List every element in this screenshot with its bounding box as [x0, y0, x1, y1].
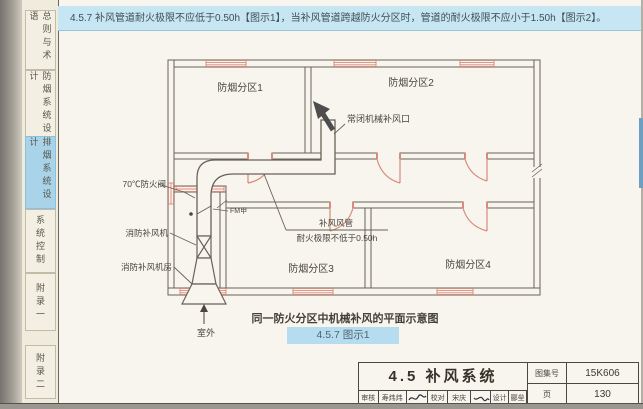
chapter-tab-column: 总则与术语 防烟系统设计 排烟系统设计 系统控制 附录一 附录二: [22, 0, 59, 404]
page-no-value: 130: [567, 384, 638, 404]
duct-label-line2: 耐火极限不低于0.50h: [297, 233, 378, 243]
section-title: 4.5 补风系统: [359, 363, 527, 390]
figure-tag: 4.5.7 图示1: [287, 327, 399, 344]
scanned-standard-page: 总则与术语 防烟系统设计 排烟系统设计 系统控制 附录一 附录二 4.5.7 补…: [0, 0, 643, 409]
tab-appendix-2: 附录二: [25, 345, 56, 399]
fire-supply-fan: [182, 236, 226, 304]
tab-smoke-exhaust-design: 排烟系统设计: [25, 136, 56, 209]
tab-appendix-1: 附录一: [25, 273, 56, 331]
zone-2-label: 防烟分区2: [388, 76, 434, 89]
fan-label: 消防补风机: [125, 228, 168, 238]
fan-room-label: 消防补风机房: [121, 262, 172, 272]
floor-plan-diagram: 防烟分区1 防烟分区2 防烟分区3 防烟分区4 70℃防火阀 FM甲 消防补风机…: [96, 46, 574, 342]
zone-4-label: 防烟分区4: [445, 258, 491, 271]
signature-icon: [407, 392, 427, 404]
outlet-label: 常闭机械补风口: [347, 113, 410, 124]
zone-1-label: 防烟分区1: [217, 81, 263, 94]
damper-mark-label: FM甲: [230, 207, 247, 215]
tab-edge-marker: [639, 118, 643, 188]
duct-label-line1: 补风风管: [319, 218, 353, 228]
signature-row: 审核 寿炜炜 校对 宋庆 设计 郦垒: [359, 390, 527, 404]
atlas-no-label: 图集号: [528, 363, 567, 383]
zone-3-label: 防烟分区3: [288, 262, 334, 275]
outdoor-arrow: [200, 304, 208, 324]
tab-system-control: 系统控制: [25, 209, 56, 273]
tab-general-terms: 总则与术语: [25, 10, 56, 70]
atlas-no-value: 15K606: [567, 363, 638, 383]
outdoor-intake-flare: [182, 284, 226, 304]
page-bottom-edge: [0, 403, 643, 409]
outdoor-label: 室外: [197, 327, 215, 338]
title-block: 4.5 补风系统 审核 寿炜炜 校对 宋庆 设计 郦垒: [358, 362, 639, 405]
signature-icon: [472, 392, 490, 404]
page-no-label: 页: [528, 384, 567, 404]
figure-caption: 同一防火分区中机械补风的平面示意图: [240, 310, 450, 326]
clause-text-banner: 4.5.7 补风管道耐火极限不应低于0.50h【图示1】，当补风管道跨越防火分区…: [58, 6, 643, 31]
tab-smoke-prevention-design: 防烟系统设计: [25, 70, 56, 138]
damper-label: 70℃防火阀: [123, 179, 166, 189]
book-spine-edge: [0, 0, 22, 409]
